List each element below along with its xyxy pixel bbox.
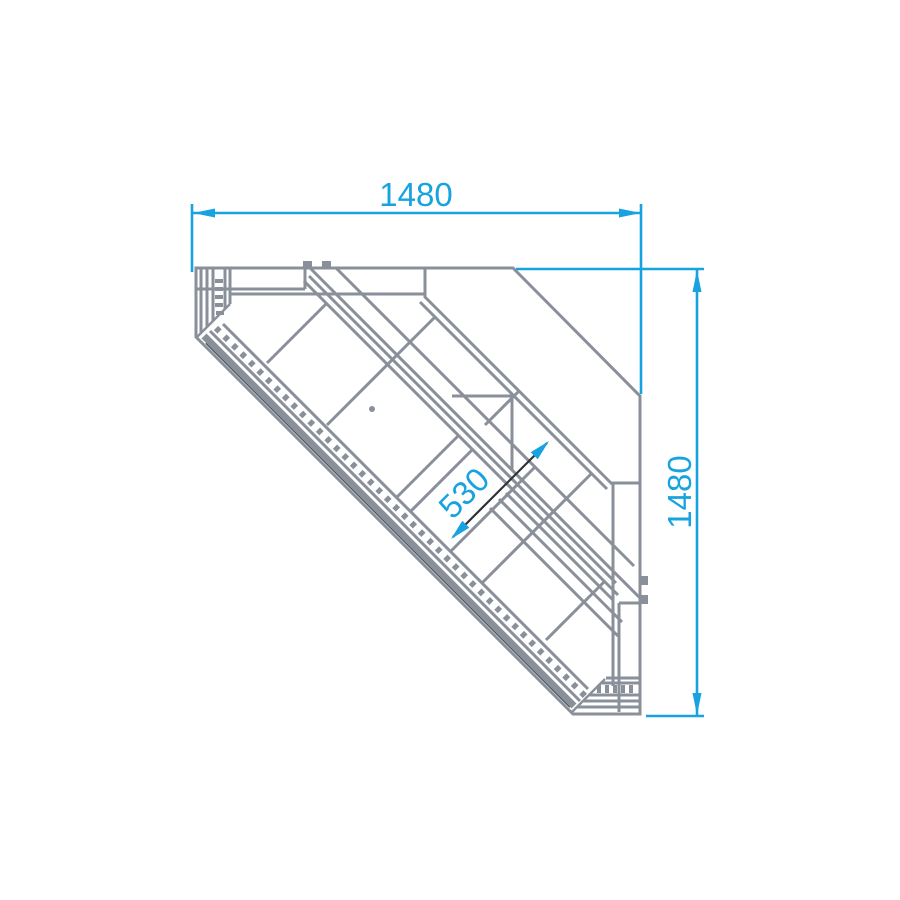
top-edge-fitting (322, 261, 331, 268)
front-bumper (196, 304, 605, 713)
arrowhead-right (619, 209, 641, 218)
dimension-label-top: 1480 (379, 176, 452, 213)
dimension-right-depth: 1480 (516, 269, 704, 716)
fixing-dot (369, 406, 375, 412)
cap-vent-rungs (599, 685, 631, 693)
right-edge-fitting (641, 576, 648, 585)
bumper-inner-line (210, 331, 580, 701)
shelf-dividers (267, 304, 622, 640)
divider-line (267, 304, 326, 363)
canopy-rail-line (309, 276, 616, 583)
dimension-label-right: 1480 (661, 455, 698, 528)
divider-line (482, 473, 592, 583)
deck-edge-line (506, 493, 613, 600)
cap-vent-rungs (215, 281, 224, 313)
divider-line (327, 317, 435, 425)
drawing-page: 1480 1480 530 (0, 0, 900, 900)
technical-drawing-canvas: 1480 1480 530 (0, 0, 900, 900)
perforated-grille-strip (216, 328, 585, 696)
right-end-cap (577, 678, 640, 707)
top-edge-fitting (303, 261, 312, 268)
counter-top-view (196, 261, 648, 714)
arrowhead-left (193, 209, 215, 218)
arrowhead-up (693, 270, 702, 292)
canopy-edge-line (310, 268, 640, 598)
left-end-cap (201, 268, 230, 333)
well-front-line (223, 324, 588, 689)
arrowhead-down (693, 693, 702, 715)
right-edge-fitting (641, 595, 648, 604)
divider-line (546, 582, 604, 640)
